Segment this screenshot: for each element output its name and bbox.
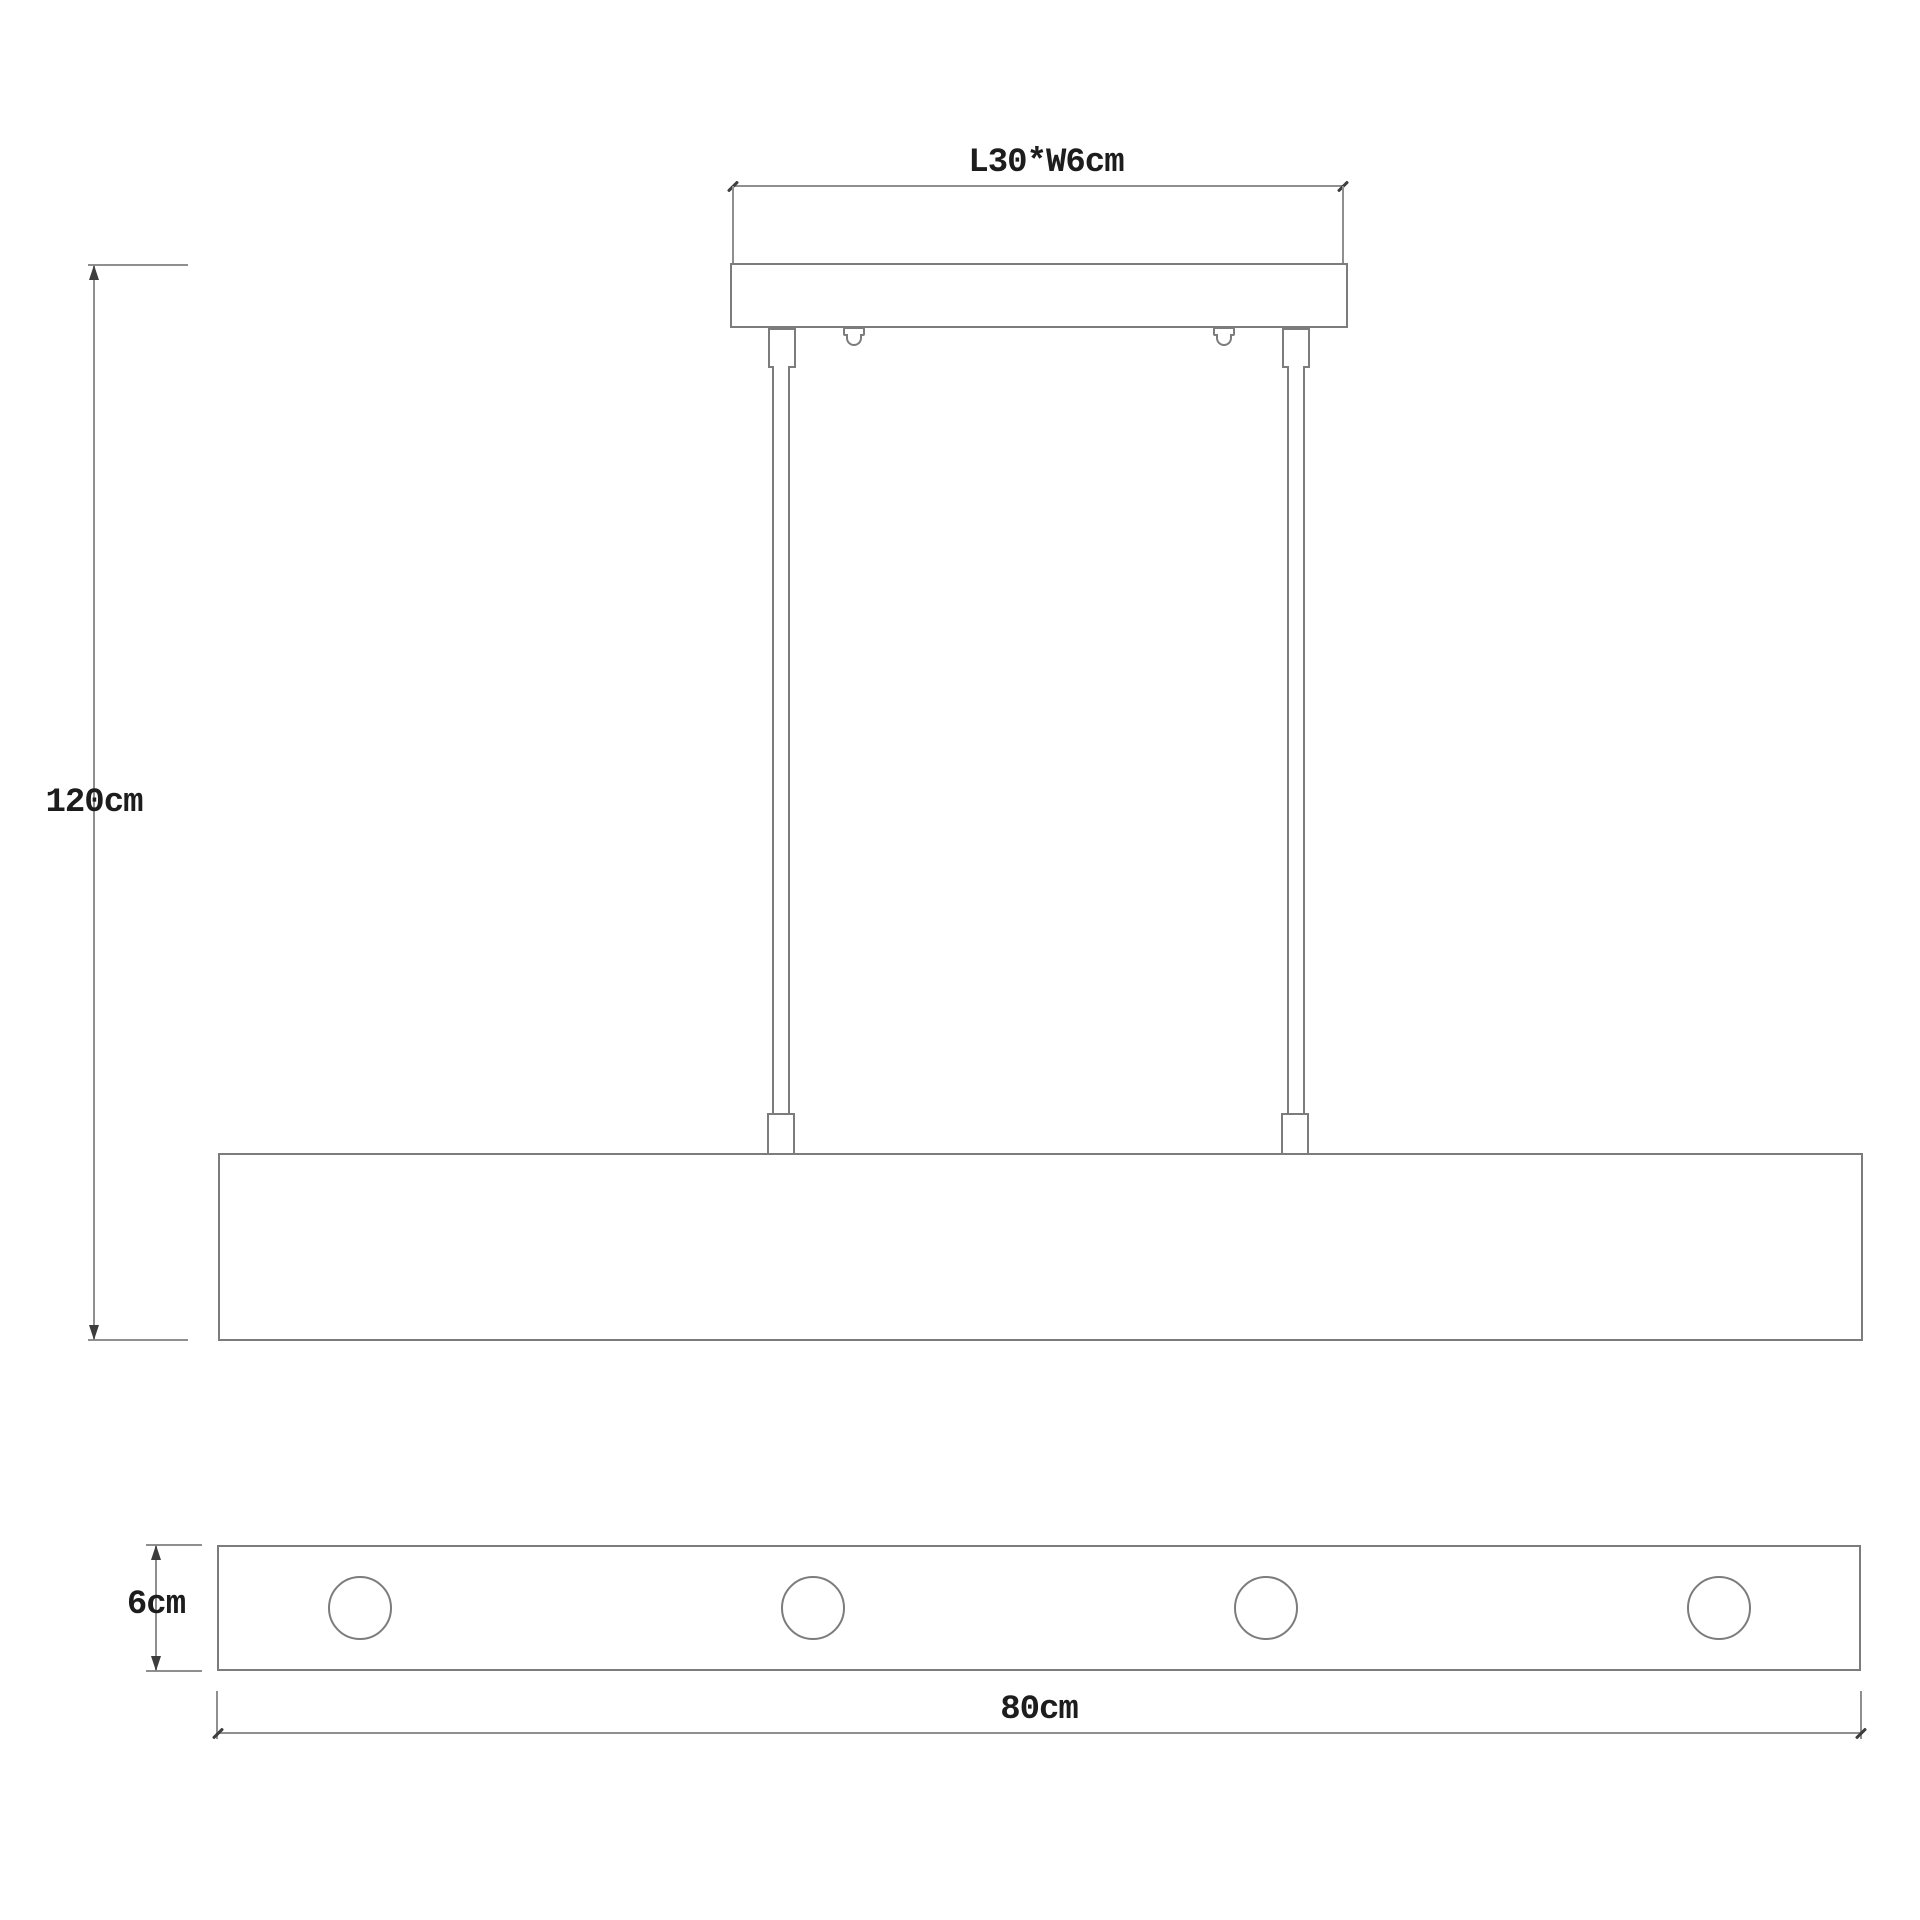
dimension-arrow-up-icon	[151, 1545, 161, 1560]
canopy-dimension-line	[733, 185, 1343, 187]
technical-drawing-canvas: L30*W6cm	[0, 0, 1920, 1920]
rod-top-connector	[768, 328, 796, 368]
rod-top-connector	[1282, 328, 1310, 368]
height-dimension-label: 120cm	[0, 781, 188, 825]
ceiling-canopy-plate	[730, 263, 1348, 328]
suspension-rod	[772, 366, 790, 1114]
dimension-arrow-up-icon	[89, 265, 99, 280]
extension-line	[732, 186, 734, 264]
lamp-bar-front	[218, 1153, 1863, 1341]
suspension-rod	[1287, 366, 1305, 1114]
extension-line	[88, 264, 188, 266]
mounting-screw-icon	[843, 327, 865, 346]
lamp-circle	[1234, 1576, 1298, 1640]
length-dimension-line	[218, 1732, 1861, 1734]
mounting-screw-icon	[1213, 327, 1235, 346]
screw-body	[1216, 334, 1232, 346]
lamp-circle	[328, 1576, 392, 1640]
lamp-bar-bottom	[217, 1545, 1861, 1671]
lamp-circle	[1687, 1576, 1751, 1640]
dimension-arrow-down-icon	[89, 1325, 99, 1340]
depth-dimension-label: 6cm	[56, 1583, 256, 1627]
length-dimension-label: 80cm	[889, 1690, 1189, 1730]
extension-line	[88, 1339, 188, 1341]
dimension-arrow-down-icon	[151, 1656, 161, 1671]
rod-bottom-connector	[767, 1113, 795, 1155]
canopy-dimension-label: L30*W6cm	[896, 140, 1196, 186]
lamp-circle	[781, 1576, 845, 1640]
rod-bottom-connector	[1281, 1113, 1309, 1155]
extension-line	[1342, 186, 1344, 264]
screw-body	[846, 334, 862, 346]
